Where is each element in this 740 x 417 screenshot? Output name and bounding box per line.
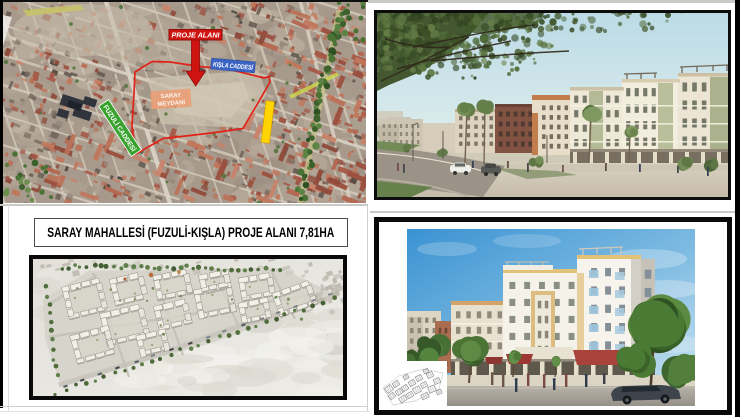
- svg-text:PROJE ALANI: PROJE ALANI: [171, 31, 220, 40]
